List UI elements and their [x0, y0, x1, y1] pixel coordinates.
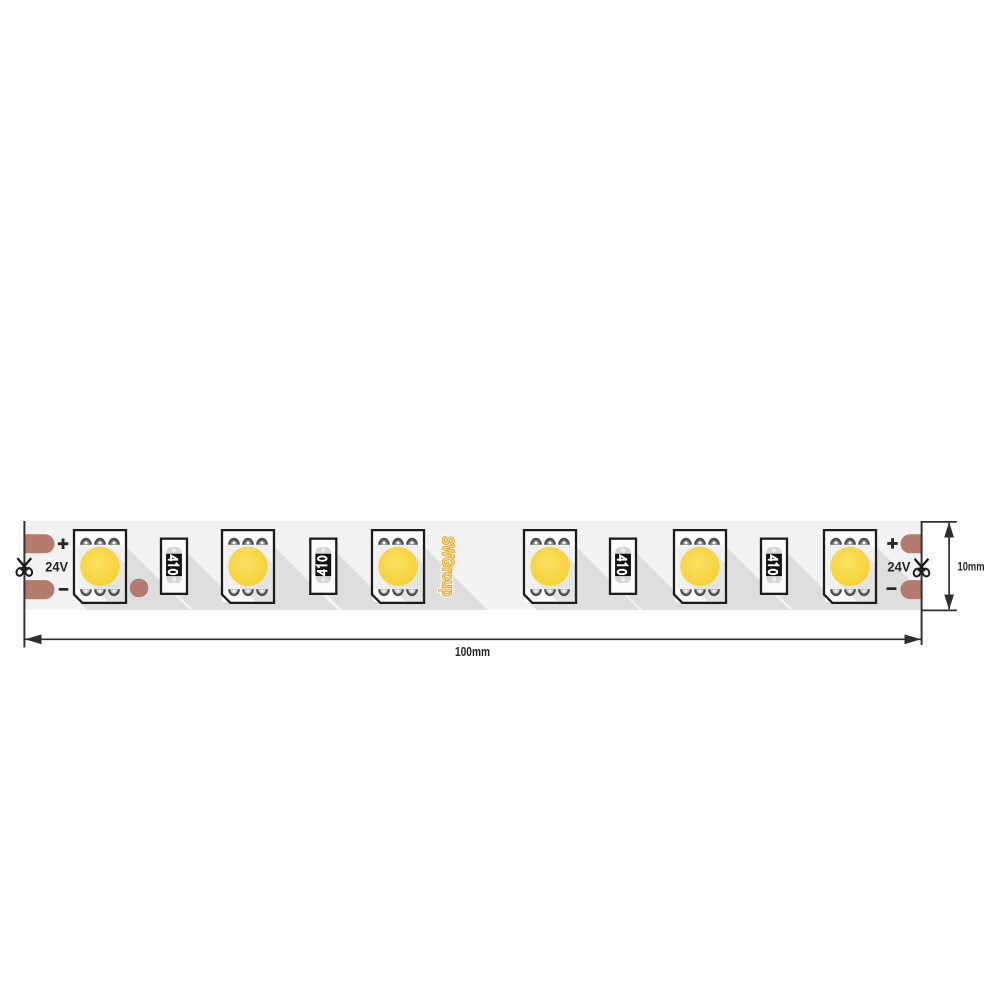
svg-text:10mm: 10mm: [958, 560, 985, 574]
svg-text:100mm: 100mm: [455, 645, 490, 659]
svg-text:24V: 24V: [887, 560, 910, 575]
svg-text:24V: 24V: [45, 560, 68, 575]
svg-text:SWGroup: SWGroup: [439, 536, 457, 596]
